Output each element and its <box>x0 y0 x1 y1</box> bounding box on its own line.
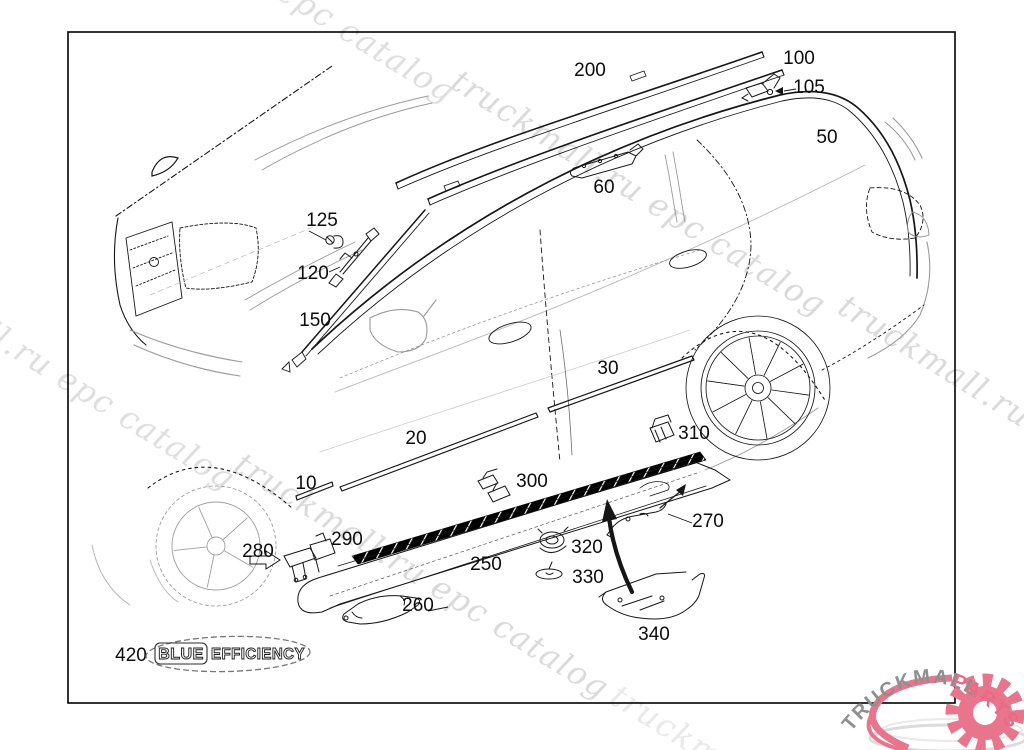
callout-290: 290 <box>331 529 363 550</box>
callout-105: 105 <box>793 77 825 98</box>
badge-efficiency-text: EFFICIENCY <box>211 646 305 663</box>
brand-logo: TRUCKMALL PARTS <box>838 665 1024 750</box>
side-mirror <box>370 300 436 352</box>
callout-270: 270 <box>692 511 724 532</box>
support-icon-340 <box>599 572 705 619</box>
callout-60: 60 <box>593 177 614 198</box>
callout-125: 125 <box>306 210 338 231</box>
callout-340: 340 <box>638 624 670 645</box>
callout-30: 30 <box>597 358 618 379</box>
parts-diagram-page: truckmall.ru epc catalog truckmall.ru ep… <box>0 0 1024 750</box>
watermark-text: truckmall.ru epc catalog <box>0 236 243 499</box>
callout-250: 250 <box>470 554 502 575</box>
callout-280: 280 <box>242 541 274 562</box>
grommet-icon-320 <box>538 527 568 553</box>
bracket-icon-270 <box>607 484 686 538</box>
bracket-icon-120 <box>329 228 379 287</box>
side-strip-30 <box>548 356 694 412</box>
callout-120: 120 <box>297 263 329 284</box>
far-roof-edge <box>116 66 432 216</box>
callout-10: 10 <box>295 473 316 494</box>
watermark-text: truckmall.ru epc catalog <box>228 445 617 708</box>
callout-300: 300 <box>516 471 548 492</box>
callout-260: 260 <box>402 595 434 616</box>
callout-420: 420 <box>115 645 147 666</box>
callout-100: 100 <box>783 48 815 69</box>
direction-arrow <box>602 499 632 592</box>
callout-320: 320 <box>571 537 603 558</box>
grommet-icon-330 <box>536 562 562 579</box>
callout-330: 330 <box>572 567 604 588</box>
badge-blue-text: BLUE <box>158 646 204 663</box>
part-icons <box>250 74 780 624</box>
side-strip-20 <box>340 413 538 491</box>
diagram-canvas: truckmall.ru epc catalog truckmall.ru ep… <box>0 0 1024 750</box>
watermark-text: truckmall.ru epc catalog <box>832 287 1024 550</box>
callout-20: 20 <box>405 428 426 449</box>
callout-310: 310 <box>678 423 710 444</box>
callout-50: 50 <box>816 127 837 148</box>
car-line-art <box>92 52 930 613</box>
watermark-text: truckmall.ru epc catalog <box>74 0 463 111</box>
clip-icon-300 <box>478 469 510 502</box>
watermark-layer: truckmall.ru epc catalog truckmall.ru ep… <box>0 0 1024 750</box>
clip-icon-310 <box>650 415 674 442</box>
callout-150: 150 <box>299 310 331 331</box>
blue-efficiency-badge: BLUE EFFICIENCY <box>146 634 311 673</box>
a-pillar-strip-150 <box>282 210 429 372</box>
watermark-text: truckmall.ru epc catalog <box>445 62 834 325</box>
callout-200: 200 <box>574 60 606 81</box>
clip-icon-125 <box>326 236 343 249</box>
